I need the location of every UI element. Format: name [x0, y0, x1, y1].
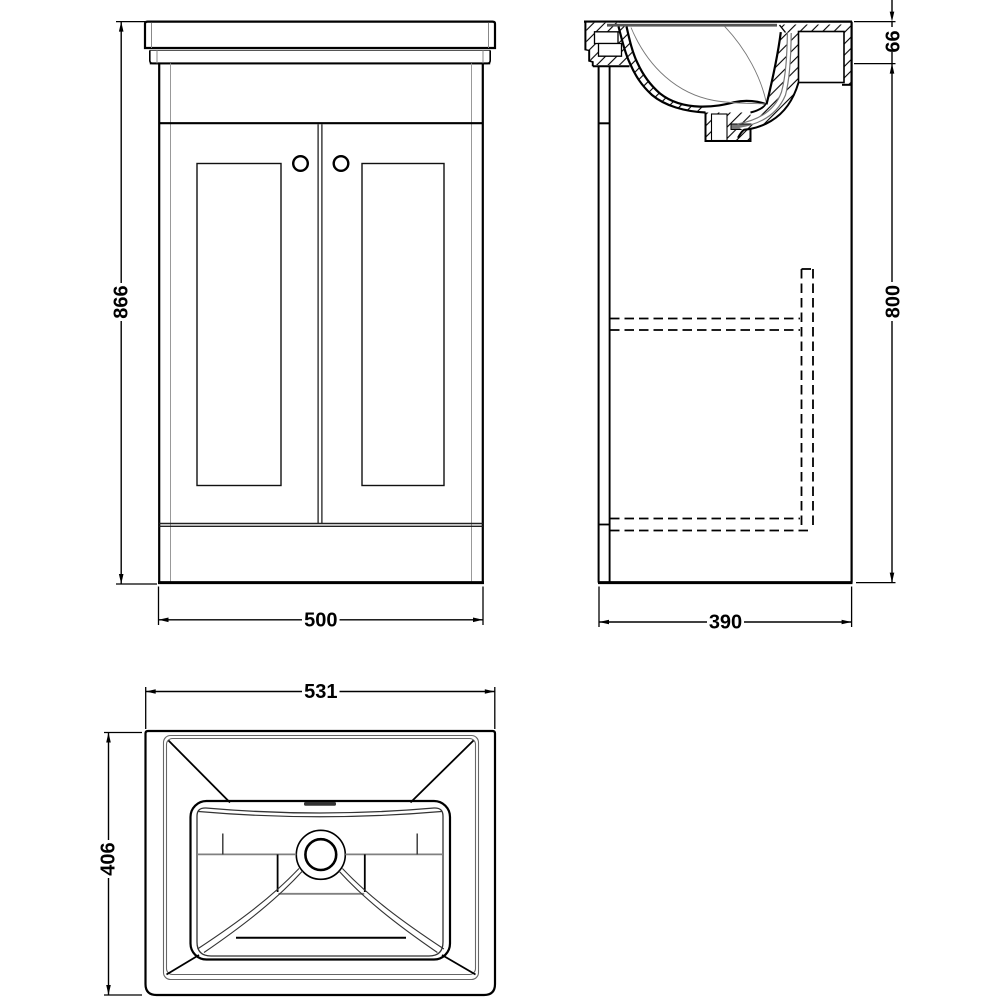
- svg-text:866: 866: [111, 285, 133, 318]
- svg-text:390: 390: [709, 612, 742, 634]
- svg-text:531: 531: [304, 681, 337, 703]
- svg-text:800: 800: [883, 285, 905, 318]
- svg-text:500: 500: [304, 609, 337, 631]
- svg-text:66: 66: [883, 30, 905, 52]
- svg-text:406: 406: [98, 842, 120, 875]
